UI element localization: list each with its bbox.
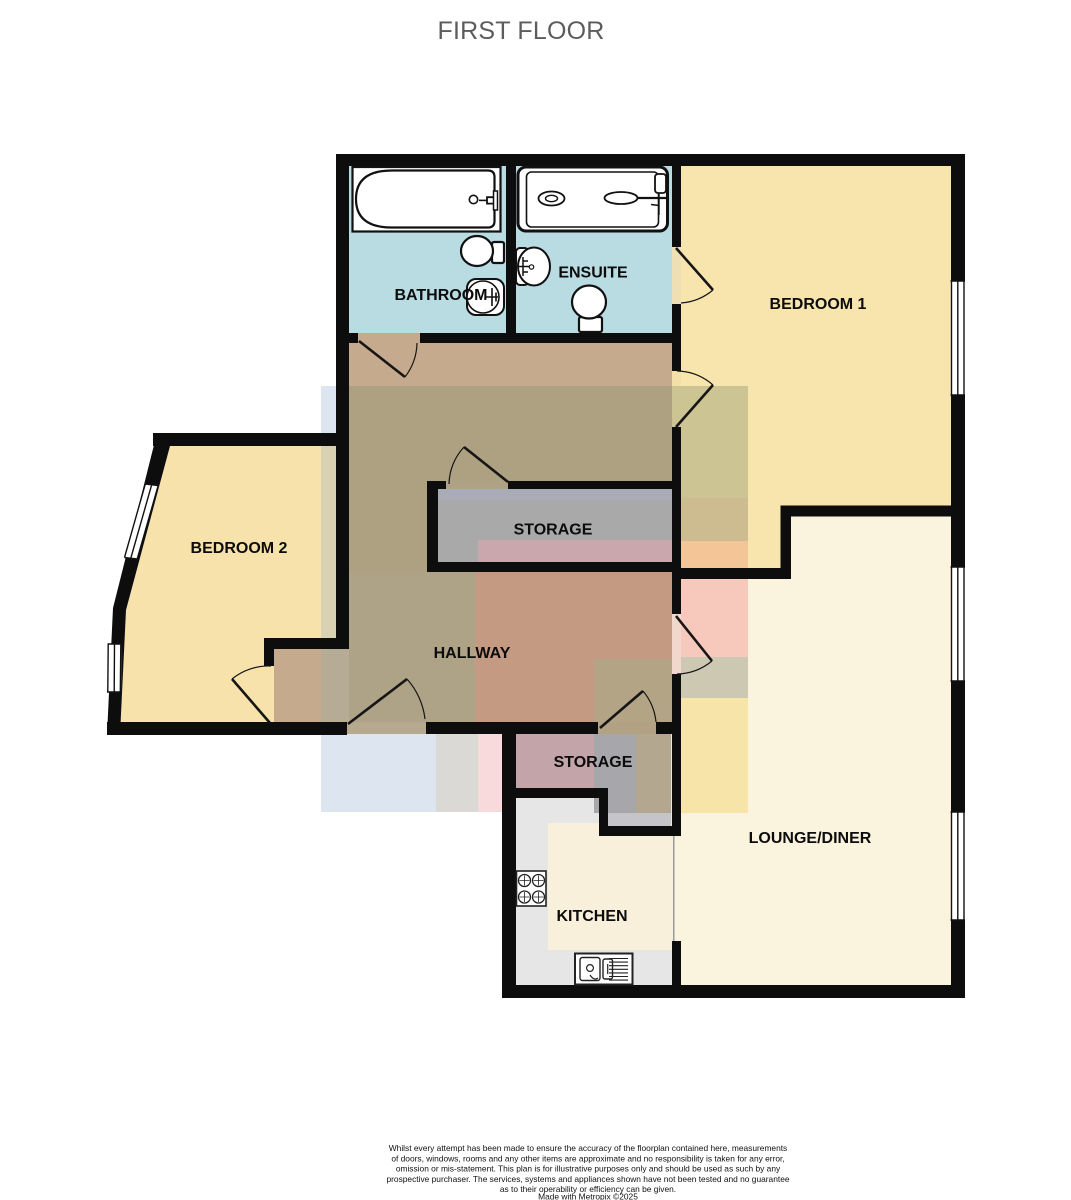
svg-text:Made with Metropix ©2025: Made with Metropix ©2025 <box>538 1192 638 1200</box>
svg-text:Whilst every attempt has been: Whilst every attempt has been made to en… <box>389 1143 788 1153</box>
svg-text:BEDROOM 2: BEDROOM 2 <box>191 540 288 557</box>
svg-text:of doors, windows, rooms and a: of doors, windows, rooms and any other i… <box>391 1153 784 1163</box>
svg-text:KITCHEN: KITCHEN <box>556 908 627 925</box>
svg-text:LOUNGE/DINER: LOUNGE/DINER <box>749 830 872 847</box>
svg-text:omission or mis-statement. Thi: omission or mis-statement. This plan is … <box>396 1164 781 1174</box>
svg-text:prospective purchaser. The ser: prospective purchaser. The services, sys… <box>386 1174 789 1184</box>
svg-text:ENSUITE: ENSUITE <box>558 265 628 282</box>
svg-text:STORAGE: STORAGE <box>554 754 633 771</box>
svg-text:FIRST FLOOR: FIRST FLOOR <box>437 17 604 45</box>
svg-text:HALLWAY: HALLWAY <box>434 645 511 662</box>
svg-text:BATHROOM: BATHROOM <box>394 287 487 304</box>
svg-text:BEDROOM 1: BEDROOM 1 <box>770 296 867 313</box>
svg-text:STORAGE: STORAGE <box>514 522 593 539</box>
